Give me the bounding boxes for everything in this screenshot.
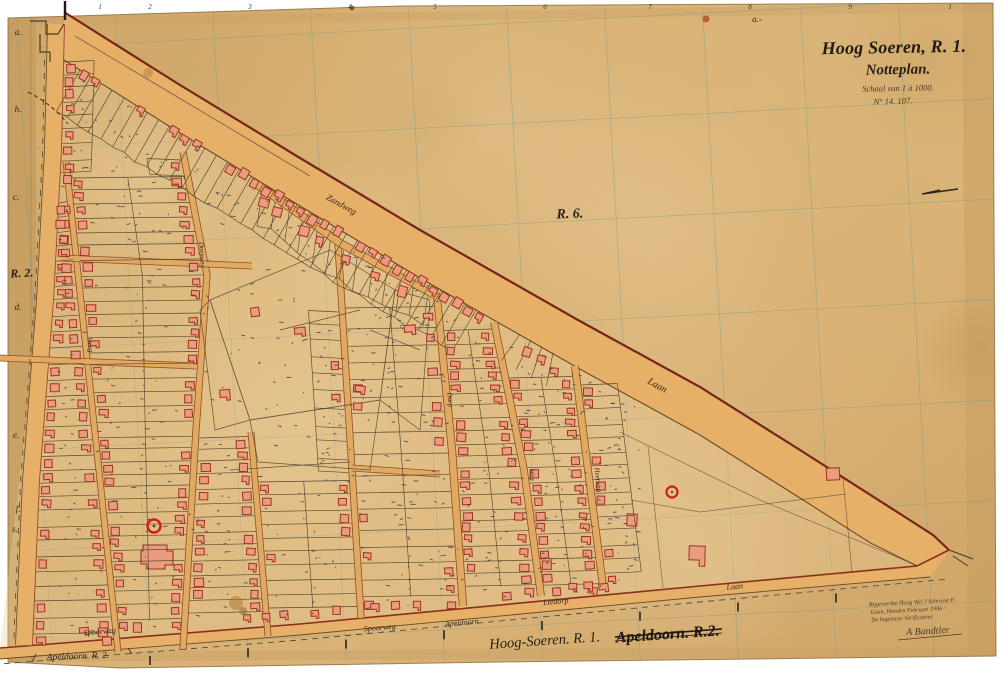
svg-text:1: 1 [98,3,102,11]
svg-text:5: 5 [433,3,437,11]
svg-text:8: 8 [748,3,752,11]
svg-text:9: 9 [848,3,852,11]
svg-text:h.: h. [15,104,22,114]
svg-text:Schaal van 1 à 1000.: Schaal van 1 à 1000. [862,82,934,93]
svg-text:Hoog Soeren, R. 1.: Hoog Soeren, R. 1. [820,36,966,59]
svg-text:Weg: Weg [527,469,536,482]
svg-text:7: 7 [648,3,652,11]
svg-text:4: 4 [348,3,352,11]
svg-text:N° 14. 107.: N° 14. 107. [872,95,912,106]
svg-text:3: 3 [247,3,252,11]
svg-text:R. 6.: R. 6. [555,207,583,223]
svg-text:Laan: Laan [725,581,743,591]
svg-text:Dorp: Dorp [445,391,454,408]
svg-text:s.: s. [12,524,18,534]
svg-text:6: 6 [543,3,547,11]
svg-text:a.-: a.- [752,14,762,24]
svg-text:a.: a. [15,27,22,37]
svg-text:1: 1 [948,3,952,11]
svg-text:R. 2.: R. 2. [9,265,34,280]
svg-text:c.: c. [13,192,19,202]
svg-text:d.: d. [15,302,22,312]
svg-text:2: 2 [148,3,152,11]
svg-text:e.: e. [13,430,19,440]
svg-text:Steeg: Steeg [85,337,95,353]
svg-text:A Bandtler: A Bandtler [905,625,950,638]
svg-text:Notteplan.: Notteplan. [864,61,930,78]
svg-text:f.: f. [16,504,21,514]
